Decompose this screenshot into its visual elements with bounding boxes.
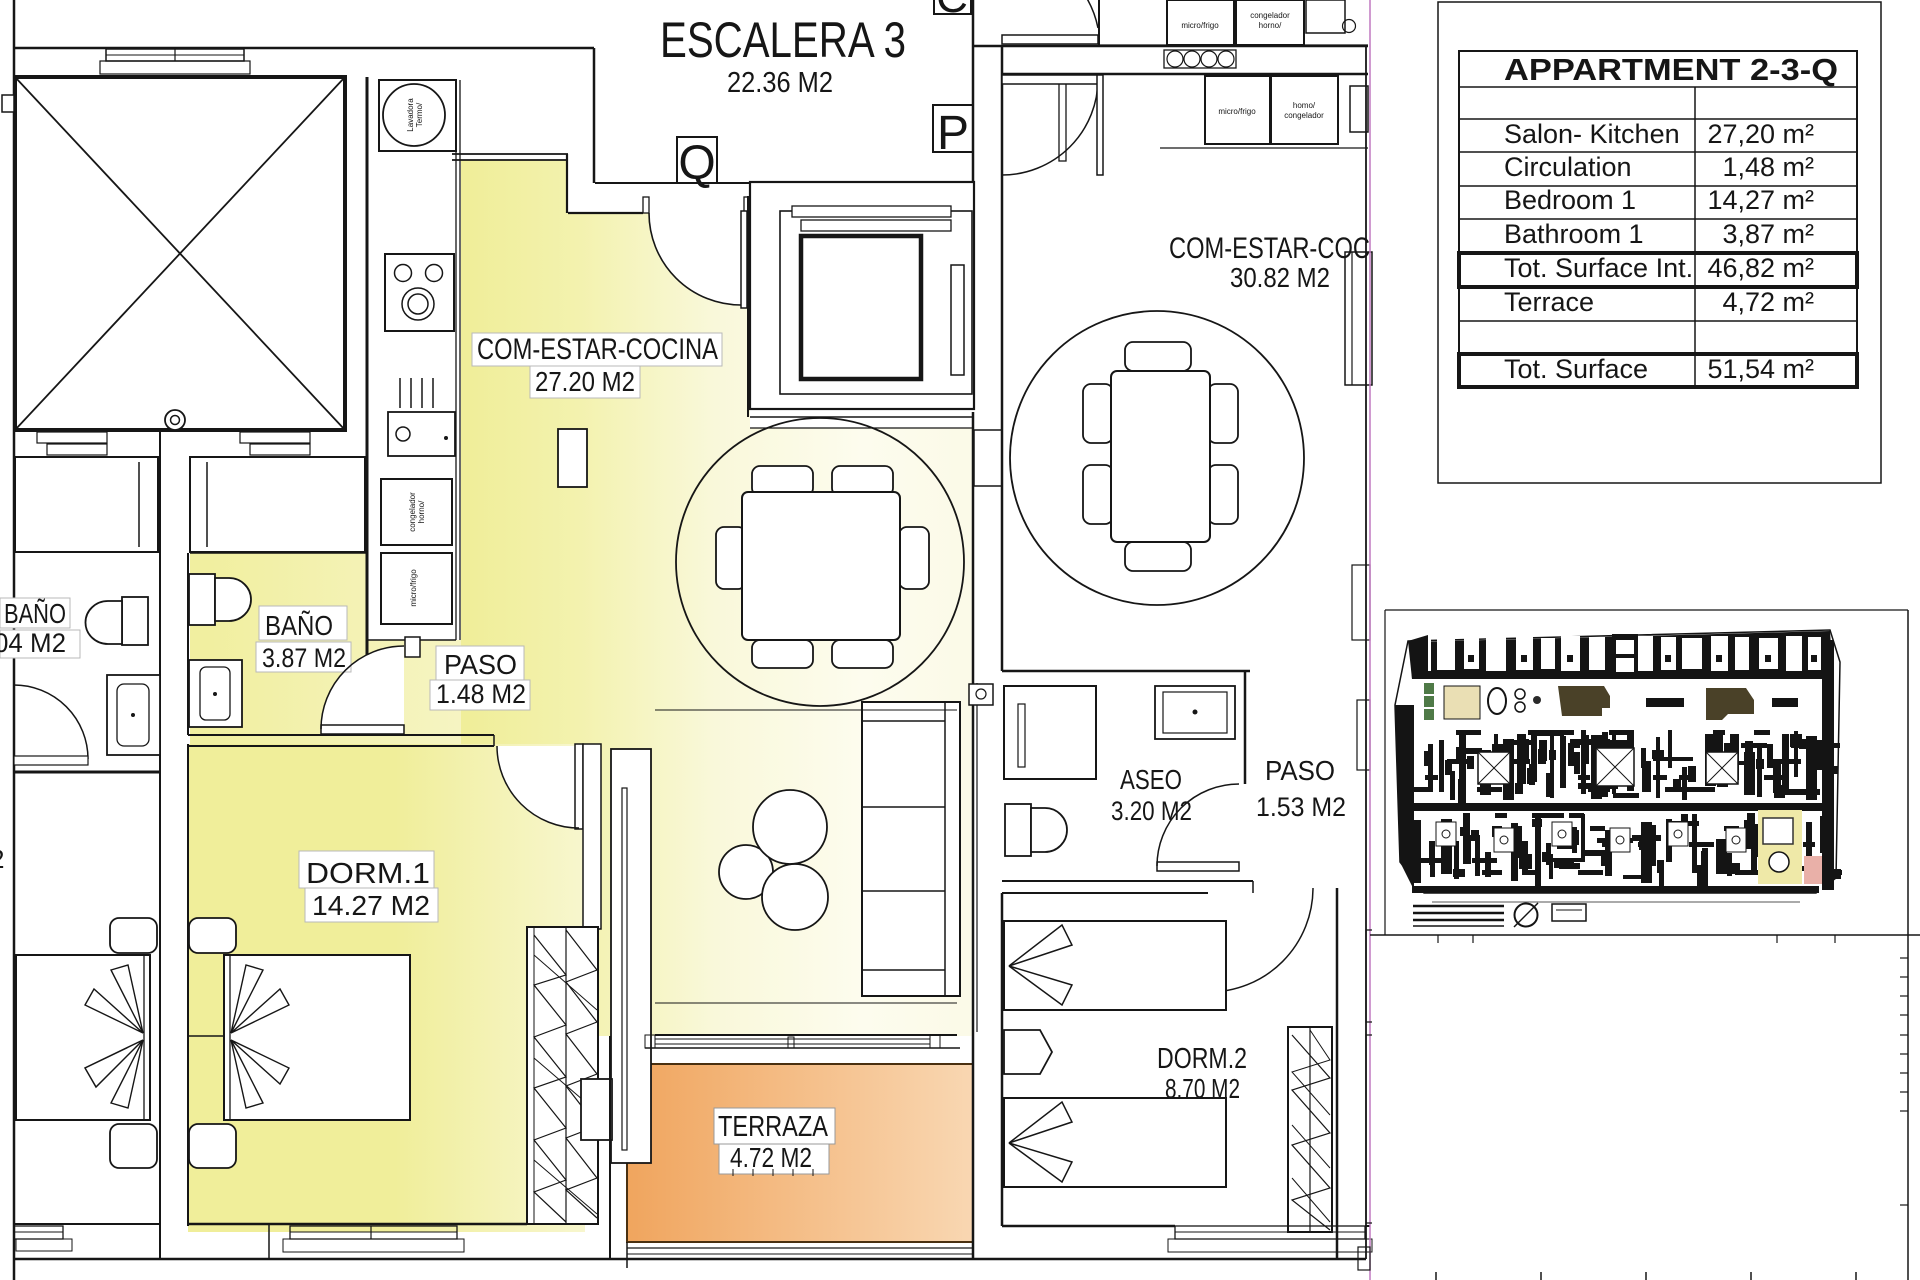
svg-text:Bedroom 1: Bedroom 1 bbox=[1504, 185, 1636, 215]
svg-text:ASEO: ASEO bbox=[1120, 764, 1182, 795]
svg-text:14,27 m²: 14,27 m² bbox=[1707, 185, 1814, 215]
svg-text:homo/: homo/ bbox=[1293, 101, 1316, 110]
svg-text:PASO: PASO bbox=[1265, 755, 1335, 786]
svg-text:APPARTMENT 2-3-Q: APPARTMENT 2-3-Q bbox=[1504, 52, 1838, 87]
svg-text:3.20 M2: 3.20 M2 bbox=[1111, 796, 1192, 826]
svg-text:Q: Q bbox=[678, 137, 715, 190]
svg-text:COM-ESTAR-COC: COM-ESTAR-COC bbox=[1169, 232, 1370, 265]
svg-text:micro/frigo: micro/frigo bbox=[409, 569, 418, 607]
svg-text:horno/: horno/ bbox=[1259, 21, 1282, 30]
svg-text:TERRAZA: TERRAZA bbox=[718, 1111, 829, 1143]
svg-text:micro/frigo: micro/frigo bbox=[1218, 107, 1256, 116]
svg-text:C: C bbox=[936, 0, 968, 22]
svg-text:4.72 M2: 4.72 M2 bbox=[730, 1142, 812, 1173]
svg-text:P: P bbox=[937, 107, 969, 160]
svg-text:22.36 M2: 22.36 M2 bbox=[727, 67, 833, 99]
svg-text:3.87 M2: 3.87 M2 bbox=[262, 643, 346, 673]
svg-text:DORM.1: DORM.1 bbox=[306, 858, 430, 890]
svg-text:46,82 m²: 46,82 m² bbox=[1707, 253, 1814, 283]
svg-text:BAÑO: BAÑO bbox=[265, 610, 333, 641]
svg-text:Terrace: Terrace bbox=[1504, 287, 1594, 317]
svg-text:4,72 m²: 4,72 m² bbox=[1722, 287, 1814, 317]
svg-text:COM-ESTAR-COCINA: COM-ESTAR-COCINA bbox=[477, 333, 718, 366]
svg-text:Tot. Surface: Tot. Surface bbox=[1504, 354, 1648, 384]
svg-text:Salon- Kitchen: Salon- Kitchen bbox=[1504, 119, 1680, 149]
svg-text:PASO: PASO bbox=[444, 649, 517, 680]
svg-text:1,48 m²: 1,48 m² bbox=[1722, 152, 1814, 182]
svg-text:Circulation: Circulation bbox=[1504, 152, 1632, 182]
svg-text:1.53 M2: 1.53 M2 bbox=[1256, 792, 1346, 822]
svg-text:3,87 m²: 3,87 m² bbox=[1722, 219, 1814, 249]
svg-text:DORM.2: DORM.2 bbox=[1157, 1043, 1247, 1075]
svg-text:BAÑO: BAÑO bbox=[4, 598, 66, 629]
svg-text:ESCALERA 3: ESCALERA 3 bbox=[660, 12, 906, 68]
svg-text:congelador: congelador bbox=[1284, 111, 1324, 120]
svg-text:Bathroom 1: Bathroom 1 bbox=[1504, 219, 1644, 249]
svg-text:2: 2 bbox=[0, 844, 4, 874]
svg-text:14.27 M2: 14.27 M2 bbox=[312, 890, 430, 921]
svg-text:8.70 M2: 8.70 M2 bbox=[1165, 1073, 1240, 1104]
svg-text:30.82 M2: 30.82 M2 bbox=[1230, 262, 1330, 293]
svg-text:04 M2: 04 M2 bbox=[0, 628, 66, 658]
svg-text:51,54 m²: 51,54 m² bbox=[1707, 354, 1814, 384]
svg-text:Tot. Surface Int.: Tot. Surface Int. bbox=[1504, 253, 1693, 283]
svg-text:27.20 M2: 27.20 M2 bbox=[535, 366, 635, 397]
svg-text:1.48 M2: 1.48 M2 bbox=[436, 679, 526, 709]
svg-text:congelador: congelador bbox=[1250, 11, 1290, 20]
svg-text:LavadoraTermo/: LavadoraTermo/ bbox=[406, 98, 424, 132]
svg-text:27,20 m²: 27,20 m² bbox=[1707, 119, 1814, 149]
svg-text:micro/frigo: micro/frigo bbox=[1181, 21, 1219, 30]
